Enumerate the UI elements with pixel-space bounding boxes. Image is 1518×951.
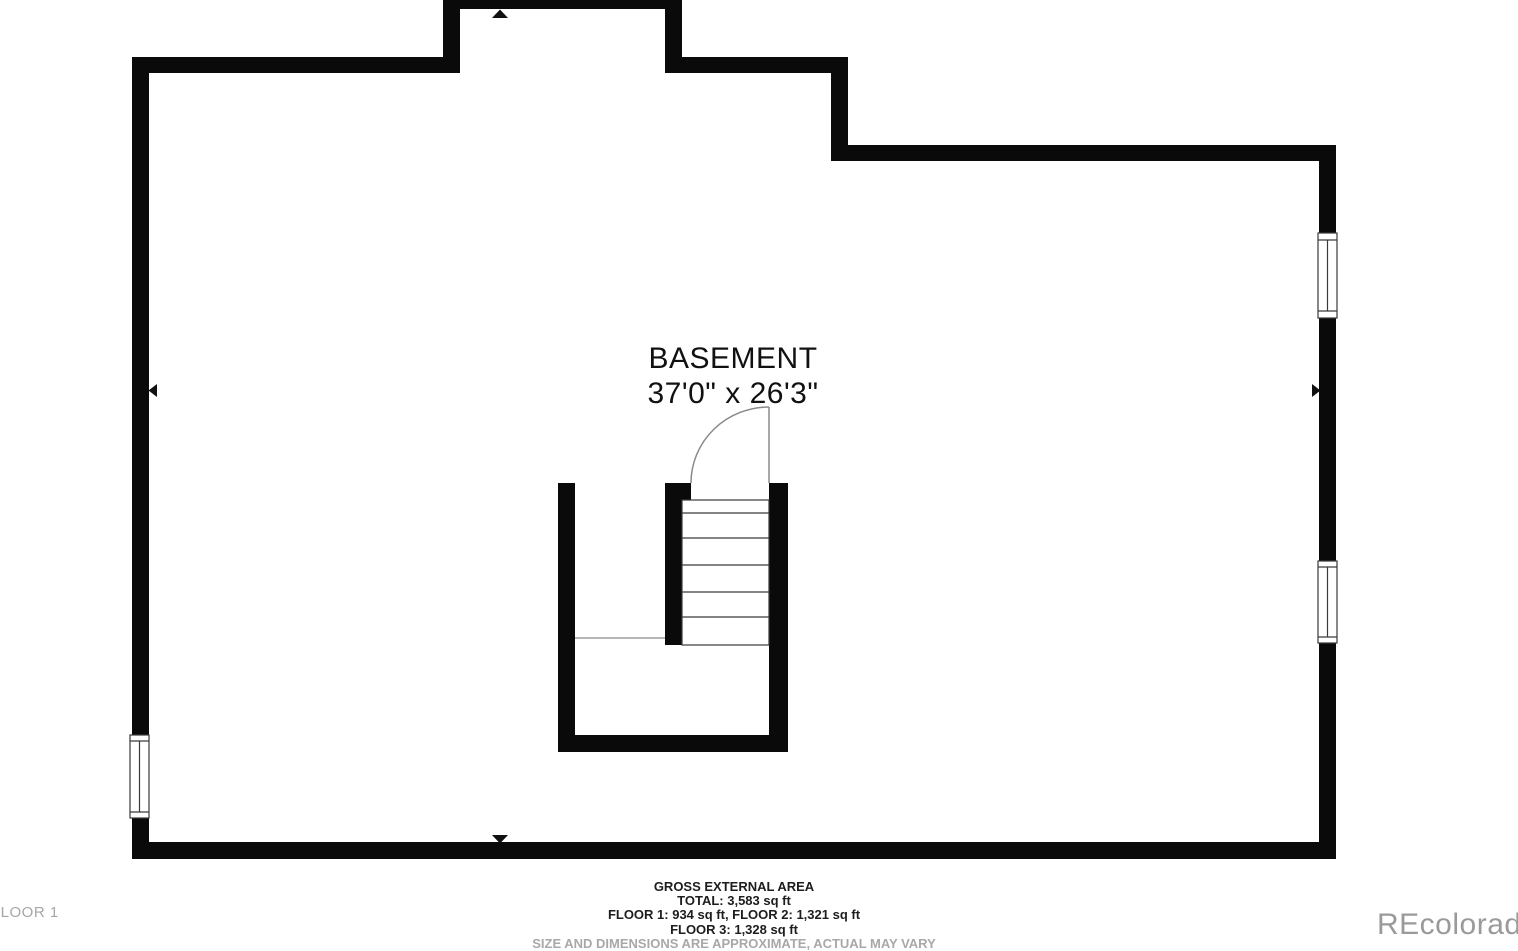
window-right-lower — [1318, 561, 1337, 643]
floorplan-drawing — [0, 0, 1518, 946]
wall-top-left — [132, 57, 460, 73]
wall-bump-left — [443, 0, 460, 73]
brand-watermark: REcolorado — [1377, 908, 1518, 942]
wall-right-upper — [1319, 145, 1336, 233]
stair-treads — [682, 500, 769, 645]
wall-right-middle — [1319, 318, 1336, 561]
stair-wall-east — [769, 483, 788, 752]
wall-bottom — [132, 842, 1336, 859]
area-summary-title: GROSS EXTERNAL AREA — [532, 880, 936, 894]
wall-top-mid — [665, 57, 848, 73]
direction-markers — [149, 10, 1321, 844]
window-right-upper — [1318, 233, 1337, 318]
room-label: BASEMENT 37'0" x 26'3" — [647, 341, 818, 411]
arrow-left-marker-icon — [149, 384, 158, 397]
wall-right-lower — [1319, 643, 1336, 859]
area-floor-3: FLOOR 3: 1,328 sq ft — [532, 923, 936, 937]
window-left — [130, 735, 149, 818]
stair-wall-inner — [665, 483, 682, 645]
exterior-walls — [132, 0, 1336, 859]
stair-wall-west — [558, 483, 575, 752]
door — [691, 407, 769, 483]
stair-shaft — [682, 500, 769, 645]
area-floors-1-2: FLOOR 1: 934 sq ft, FLOOR 2: 1,321 sq ft — [532, 908, 936, 922]
room-name: BASEMENT — [647, 341, 818, 376]
wall-left-upper — [132, 57, 149, 735]
door-swing-arc — [691, 407, 769, 483]
area-summary: GROSS EXTERNAL AREA TOTAL: 3,583 sq ft F… — [532, 880, 936, 951]
floor-number-watermark: FLOOR 1 — [0, 904, 59, 921]
staircase — [558, 407, 788, 752]
stair-wall-south — [558, 735, 788, 752]
arrow-up-marker-icon — [492, 10, 508, 19]
wall-bump-top — [443, 0, 682, 9]
wall-top-right — [831, 145, 1336, 161]
room-dimensions: 37'0" x 26'3" — [647, 376, 818, 411]
stair-door-jamb — [665, 483, 691, 500]
area-total: TOTAL: 3,583 sq ft — [532, 894, 936, 908]
area-disclaimer: SIZE AND DIMENSIONS ARE APPROXIMATE, ACT… — [532, 937, 936, 951]
